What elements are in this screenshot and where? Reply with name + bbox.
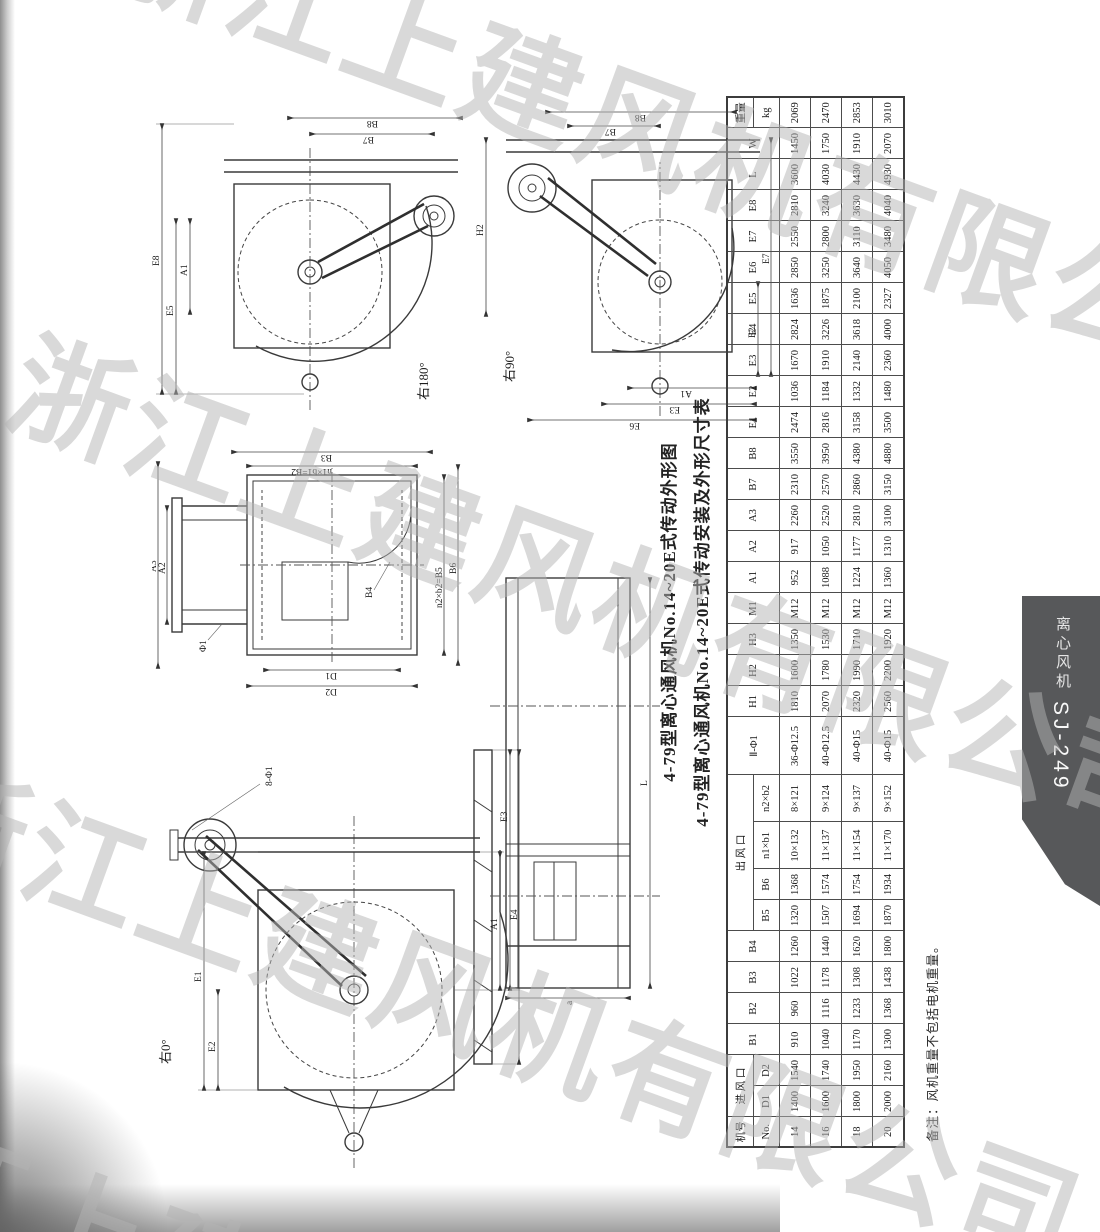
group-header: 进 风 口: [727, 1055, 754, 1117]
table-cell: 3950: [811, 438, 842, 469]
table-cell: 1480: [873, 376, 905, 407]
table-cell: 1088: [811, 562, 842, 593]
table-cell: 2070: [873, 128, 905, 159]
table-cell: 3600: [780, 159, 811, 190]
rotated-wrapper: 右0°: [0, 0, 1100, 1232]
dim-label-a2: A2: [158, 562, 168, 574]
column-header: n2×b2: [754, 775, 780, 822]
dim-label-h2: H2: [476, 224, 486, 236]
scan-edge-left: [0, 0, 15, 1232]
group-header: 重量: [727, 97, 754, 128]
table-cell: 1400: [780, 1086, 811, 1117]
table-cell: 3480: [873, 221, 905, 252]
table-cell: 1360: [873, 562, 905, 593]
table-cell: 1177: [842, 531, 873, 562]
table-cell: 1950: [842, 1055, 873, 1086]
dim-label-n2b2-b5: n2×b2=B5: [435, 567, 445, 608]
table-cell: 1620: [842, 931, 873, 962]
table-cell: 1670: [780, 345, 811, 376]
table-cell: 4430: [842, 159, 873, 190]
table-cell: 4040: [873, 190, 905, 221]
column-header: B5: [754, 900, 780, 931]
dim-label-e5: E5: [166, 305, 176, 316]
table-cell: 952: [780, 562, 811, 593]
table-cell: 3640: [842, 252, 873, 283]
landscape-content: 右0°: [0, 0, 1100, 1232]
table-cell: 2570: [811, 469, 842, 500]
table-cell: 1810: [780, 686, 811, 717]
table-cell: 1178: [811, 962, 842, 993]
table-cell: 1332: [842, 376, 873, 407]
column-header: E8: [727, 190, 780, 221]
column-header: n1×b1: [754, 822, 780, 869]
group-header: 机号: [727, 1117, 754, 1147]
table-cell: 1300: [873, 1024, 905, 1055]
table-cell: 3158: [842, 407, 873, 438]
table-row: 202000216013001368143818001870193411×170…: [873, 97, 905, 1147]
column-header: D2: [754, 1055, 780, 1086]
dim-label-e2: E2: [208, 1041, 218, 1052]
table-footnote: 备注：风机重量不包括电机重量。: [922, 939, 941, 1142]
table-cell: 11×170: [873, 822, 905, 869]
table-cell: M12: [780, 593, 811, 624]
table-cell: 1368: [780, 869, 811, 900]
column-header: H3: [727, 624, 780, 655]
table-cell: 2310: [780, 469, 811, 500]
table-cell: 36-Φ12.5: [780, 717, 811, 775]
column-header: E3: [727, 345, 780, 376]
column-header: E1: [727, 407, 780, 438]
table-cell: 20: [873, 1117, 905, 1147]
table-cell: 10×132: [780, 822, 811, 869]
table-cell: M12: [842, 593, 873, 624]
dim-label-e8: E8: [152, 255, 162, 266]
column-header: B2: [727, 993, 780, 1024]
table-cell: 40-Φ15: [873, 717, 905, 775]
column-header: Ⅱ-Φ1: [727, 717, 780, 775]
table-cell: 40-Φ12.5: [811, 717, 842, 775]
table-cell: 16: [811, 1117, 842, 1147]
table-cell: 1990: [842, 655, 873, 686]
column-header: M1: [727, 593, 780, 624]
table-cell: 1440: [811, 931, 842, 962]
table-cell: 1740: [811, 1055, 842, 1086]
table-cell: 2470: [811, 97, 842, 128]
table-cell: 1184: [811, 376, 842, 407]
table-cell: 1233: [842, 993, 873, 1024]
dim-label-d2: D2: [325, 686, 337, 696]
column-header: A2: [727, 531, 780, 562]
scanned-catalog-page: 右0°: [0, 0, 1100, 1232]
column-header: B4: [727, 931, 780, 962]
page-title-line1: 4-79型离心通风机No.14~20E式传动外形图: [655, 212, 680, 1012]
page-title-line2: 4-79型离心通风机No.14~20E式传动安装及外形尺寸表: [688, 212, 713, 1012]
table-cell: 3240: [811, 190, 842, 221]
table-cell: 1368: [873, 993, 905, 1024]
title-block: 4-79型离心通风机No.14~20E式传动外形图 4-79型离心通风机No.1…: [655, 212, 713, 1012]
column-header: D1: [754, 1086, 780, 1117]
drawing-fan-right-0: 右0°: [118, 712, 522, 1182]
table-cell: 2560: [873, 686, 905, 717]
drawing-fan-right-180: 右180° E8 E5: [138, 82, 476, 424]
table-cell: 2069: [780, 97, 811, 128]
table-cell: 2810: [780, 190, 811, 221]
table-cell: 2327: [873, 283, 905, 314]
table-row: 181800195011701233130816201694175411×154…: [842, 97, 873, 1147]
table-cell: 3250: [811, 252, 842, 283]
table-cell: 1710: [842, 624, 873, 655]
column-header: No.: [754, 1117, 780, 1147]
scan-corner-shadow: [0, 1060, 170, 1232]
dim-label-b6: B6: [449, 563, 459, 574]
table-cell: 1600: [811, 1086, 842, 1117]
table-cell: 2800: [811, 221, 842, 252]
table-cell: 3110: [842, 221, 873, 252]
table-cell: 3100: [873, 500, 905, 531]
index-tab-category: 离心风机: [1052, 616, 1073, 692]
table-cell: 3630: [842, 190, 873, 221]
angle-label: 右90°: [502, 351, 517, 382]
table-cell: 2550: [780, 221, 811, 252]
table-cell: 2100: [842, 283, 873, 314]
table-cell: M12: [873, 593, 905, 624]
dim-label-a: a: [565, 1000, 575, 1005]
table-cell: 1600: [780, 655, 811, 686]
table-cell: 1438: [873, 962, 905, 993]
table-cell: 4880: [873, 438, 905, 469]
table-cell: 4050: [873, 252, 905, 283]
table-cell: 1022: [780, 962, 811, 993]
column-header: E5: [727, 283, 780, 314]
table-cell: 4030: [811, 159, 842, 190]
table-cell: 1170: [842, 1024, 873, 1055]
table-cell: 2824: [780, 314, 811, 345]
table-cell: 1870: [873, 900, 905, 931]
dim-label-8phi1: 8-Φ1: [265, 766, 275, 786]
dim-label-b8: B8: [367, 118, 378, 128]
table-cell: 1116: [811, 993, 842, 1024]
column-header: B3: [727, 962, 780, 993]
table-cell: 3010: [873, 97, 905, 128]
column-header: kg: [754, 97, 780, 128]
table-cell: 2520: [811, 500, 842, 531]
dim-label-a1: A1: [180, 264, 190, 276]
table-cell: 3500: [873, 407, 905, 438]
dim-label-b7: B7: [363, 134, 374, 144]
dim-label-b3: B3: [321, 452, 332, 462]
table-cell: 1507: [811, 900, 842, 931]
table-cell: 4930: [873, 159, 905, 190]
table-cell: 2000: [873, 1086, 905, 1117]
table-cell: 2360: [873, 345, 905, 376]
table-cell: 1754: [842, 869, 873, 900]
table-cell: 1036: [780, 376, 811, 407]
column-header: E6: [727, 252, 780, 283]
column-header: A1: [727, 562, 780, 593]
group-header: 出 风 口: [727, 775, 754, 931]
table-cell: 3618: [842, 314, 873, 345]
angle-label: 右180°: [416, 362, 431, 400]
table-cell: 1750: [811, 128, 842, 159]
index-tab-code: SJ-249: [1048, 701, 1072, 792]
table-cell: 4380: [842, 438, 873, 469]
table-cell: 1694: [842, 900, 873, 931]
table-cell: 1310: [873, 531, 905, 562]
table-cell: M12: [811, 593, 842, 624]
table-cell: 3226: [811, 314, 842, 345]
table-cell: 960: [780, 993, 811, 1024]
dim-label-phi1: Φ1: [199, 640, 209, 652]
table-cell: 1040: [811, 1024, 842, 1055]
table-cell: 2816: [811, 407, 842, 438]
table-cell: 1910: [842, 128, 873, 159]
table-cell: 1350: [780, 624, 811, 655]
dim-label-e6: E6: [629, 420, 640, 430]
table-cell: 1920: [873, 624, 905, 655]
table-cell: 2853: [842, 97, 873, 128]
column-header: L: [727, 159, 780, 190]
table-cell: 11×137: [811, 822, 842, 869]
table-cell: 1050: [811, 531, 842, 562]
dimensions-table: 机号进 风 口B1B2B3B4出 风 口Ⅱ-Φ1H1H2H3M1A1A2A3B7…: [726, 96, 905, 1148]
table-cell: 1540: [780, 1055, 811, 1086]
drawing-base-frame: a L: [478, 554, 670, 1006]
table-cell: 18: [842, 1117, 873, 1147]
table-cell: 917: [780, 531, 811, 562]
column-header: E7: [727, 221, 780, 252]
dim-label-e1: E1: [194, 971, 204, 982]
table-cell: 1636: [780, 283, 811, 314]
table-cell: 1800: [842, 1086, 873, 1117]
table-cell: 1308: [842, 962, 873, 993]
column-header: E2: [727, 376, 780, 407]
table-cell: 1574: [811, 869, 842, 900]
table-cell: 9×152: [873, 775, 905, 822]
column-header: H1: [727, 686, 780, 717]
table-cell: 2850: [780, 252, 811, 283]
column-header: B1: [727, 1024, 780, 1055]
dim-label-b8: B8: [635, 112, 646, 122]
column-header: B7: [727, 469, 780, 500]
table-cell: 2260: [780, 500, 811, 531]
column-header: H2: [727, 655, 780, 686]
column-header: E4: [727, 314, 780, 345]
table-cell: 2810: [842, 500, 873, 531]
dim-label-d1: D1: [325, 670, 337, 680]
table-cell: 2200: [873, 655, 905, 686]
column-header: B6: [754, 869, 780, 900]
table-cell: 3150: [873, 469, 905, 500]
table-cell: 1450: [780, 128, 811, 159]
table-cell: 1800: [873, 931, 905, 962]
table-cell: 2070: [811, 686, 842, 717]
table-cell: 2860: [842, 469, 873, 500]
table-cell: 14: [780, 1117, 811, 1147]
dim-label-l: L: [640, 780, 650, 786]
table-cell: 910: [780, 1024, 811, 1055]
table-row: 1414001540910960102212601320136810×1328×…: [780, 97, 811, 1147]
table-cell: 1780: [811, 655, 842, 686]
dim-label-b7: B7: [605, 126, 616, 136]
table-cell: 4000: [873, 314, 905, 345]
dim-label-b4: B4: [365, 587, 375, 598]
table-cell: 1875: [811, 283, 842, 314]
table-cell: 1934: [873, 869, 905, 900]
table-cell: 1260: [780, 931, 811, 962]
table-cell: 3550: [780, 438, 811, 469]
table-cell: 40-Φ15: [842, 717, 873, 775]
table-cell: 1224: [842, 562, 873, 593]
drawing-inlet-box-top-view: A3 A2 D2 D1 n1×b1=B2 B3 n2×b2=B5 B6 B4 Φ…: [152, 442, 486, 710]
table-cell: 2160: [873, 1055, 905, 1086]
table-cell: 2320: [842, 686, 873, 717]
table-cell: 1530: [811, 624, 842, 655]
table-cell: 9×124: [811, 775, 842, 822]
table-cell: 2474: [780, 407, 811, 438]
table-cell: 2140: [842, 345, 873, 376]
table-cell: 1910: [811, 345, 842, 376]
table-cell: 8×121: [780, 775, 811, 822]
table-cell: 11×154: [842, 822, 873, 869]
dim-label-n1b1-b2: n1×b1=B2: [291, 466, 332, 476]
table-cell: 1320: [780, 900, 811, 931]
column-header: B8: [727, 438, 780, 469]
column-header: W: [727, 128, 780, 159]
column-header: A3: [727, 500, 780, 531]
table-cell: 9×137: [842, 775, 873, 822]
table-row: 161600174010401116117814401507157411×137…: [811, 97, 842, 1147]
